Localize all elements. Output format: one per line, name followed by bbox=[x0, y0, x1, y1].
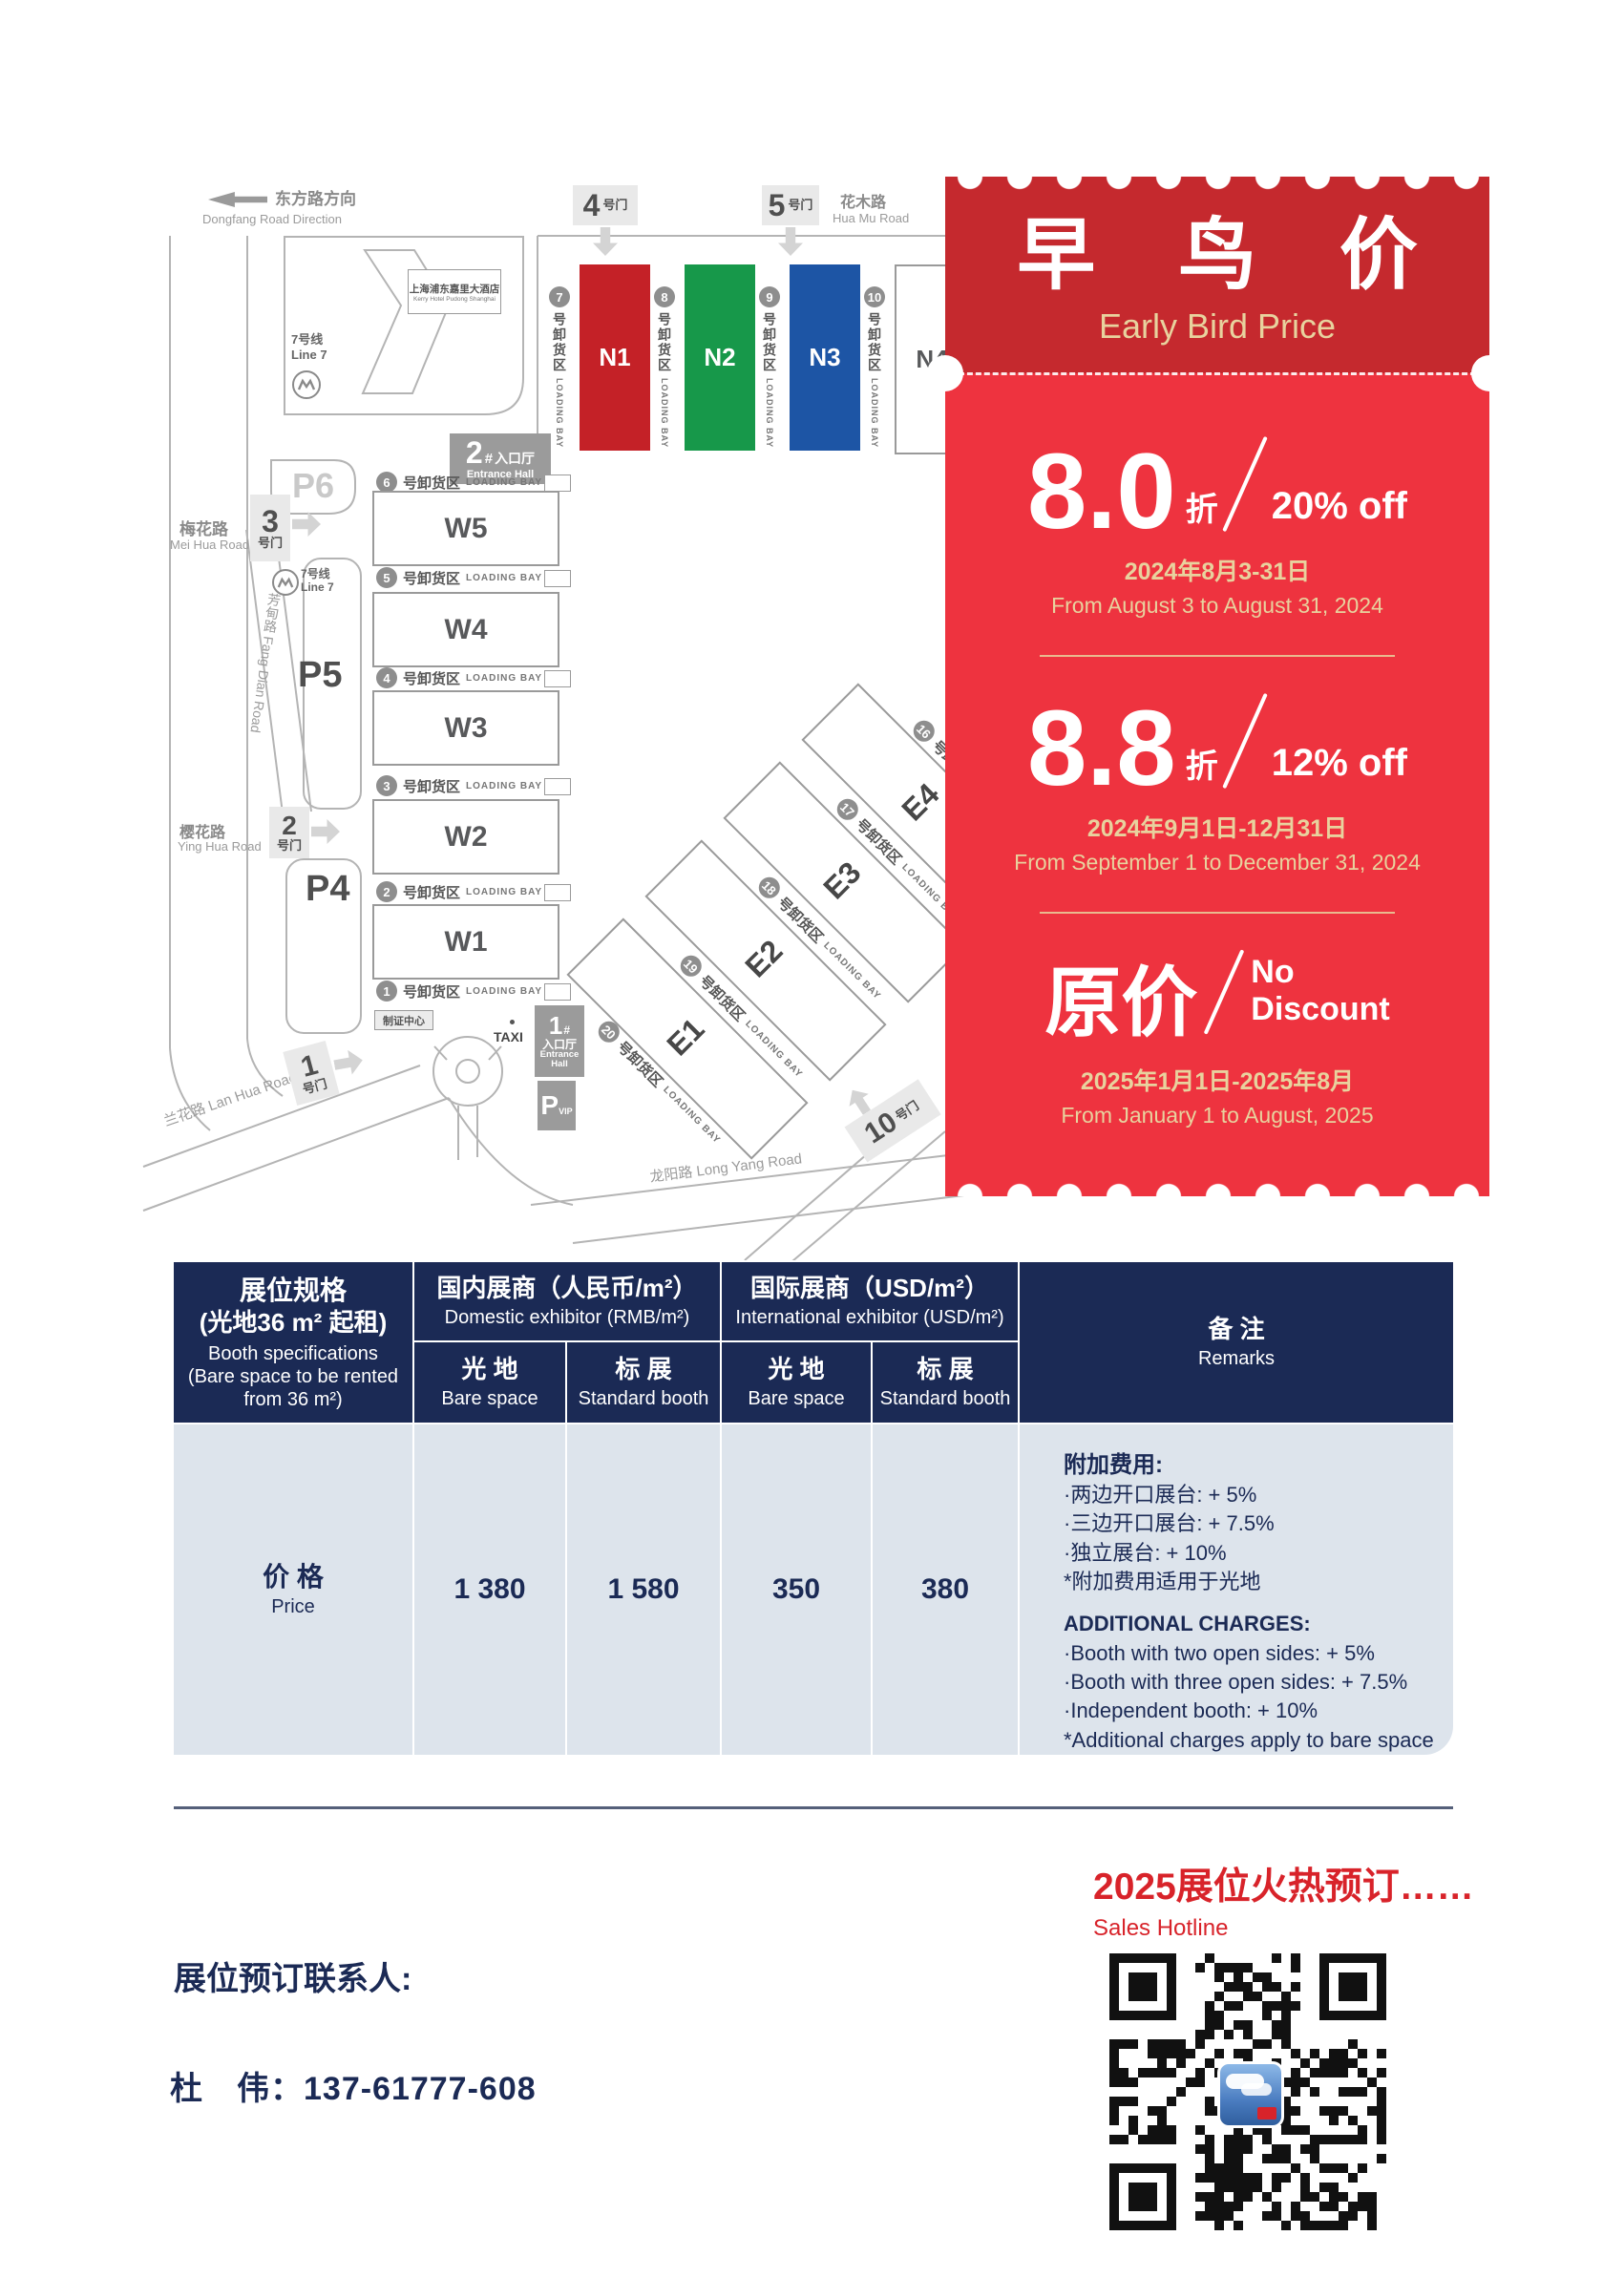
huamu-road-zh: 花木路 bbox=[840, 189, 886, 212]
qr-code bbox=[1109, 1953, 1386, 2230]
tier-3-date-en: From January 1 to August, 2025 bbox=[945, 1103, 1489, 1128]
contact-phone: 杜 伟：137-61777-608 bbox=[170, 2062, 537, 2109]
yinghua-road-en: Ying Hua Road bbox=[178, 839, 262, 854]
hall-w3: W3 bbox=[372, 690, 559, 766]
metro-icon bbox=[272, 569, 299, 596]
tier-1-date-en: From August 3 to August 31, 2024 bbox=[945, 593, 1489, 619]
dock-notch bbox=[544, 475, 571, 492]
table-cell-domestic-std: 1 580 bbox=[567, 1424, 720, 1755]
tier-2-date-en: From September 1 to December 31, 2024 bbox=[945, 850, 1489, 875]
dock-notch bbox=[544, 884, 571, 901]
coupon-notch-right bbox=[1471, 355, 1508, 391]
coupon-title-en: Early Bird Price bbox=[945, 306, 1489, 347]
table-subheader-intl-std: 标 展 Standard booth bbox=[873, 1342, 1018, 1423]
gold-divider bbox=[1040, 912, 1395, 914]
dock-notch bbox=[544, 570, 571, 587]
taxi-dot bbox=[510, 1020, 515, 1024]
table-cell-price-label: 价 格 Price bbox=[174, 1424, 412, 1755]
table-cell-domestic-bare: 1 380 bbox=[414, 1424, 565, 1755]
meihua-road-en: Mei Hua Road bbox=[170, 538, 249, 552]
sales-hotline-title: 2025展位火热预订…… bbox=[1093, 1857, 1474, 1910]
slash-divider bbox=[1222, 436, 1268, 532]
scallop-edge-bottom bbox=[945, 1179, 1489, 1196]
gate-4: 4 号门 bbox=[573, 185, 638, 225]
contact-label: 展位预订联系人: bbox=[174, 1952, 411, 1999]
qr-center-logo bbox=[1217, 2061, 1284, 2128]
table-header-international: 国际展商（USD/m²） International exhibitor (US… bbox=[722, 1262, 1018, 1340]
table-subheader-domestic-std: 标 展 Standard booth bbox=[567, 1342, 720, 1423]
hall-w5: W5 bbox=[372, 491, 559, 566]
loading-bay-9: 9 号卸货区 LOADING BAY bbox=[756, 286, 783, 448]
loading-bay-8: 8 号卸货区 LOADING BAY bbox=[651, 286, 678, 448]
coupon-notch-left bbox=[927, 355, 963, 391]
sales-hotline-subtitle: Sales Hotline bbox=[1093, 1915, 1228, 1942]
dongfang-road-label-zh: 东方路方向 bbox=[275, 185, 356, 209]
loading-bay-3: 3 号卸货区 LOADING BAY bbox=[376, 775, 542, 796]
slash-divider bbox=[1222, 693, 1268, 789]
huamu-road-en: Hua Mu Road bbox=[833, 211, 909, 225]
meihua-road-zh: 梅花路 bbox=[179, 516, 228, 539]
metro-icon bbox=[292, 370, 321, 399]
loading-bay-5: 5 号卸货区 LOADING BAY bbox=[376, 567, 542, 588]
table-subheader-domestic-bare: 光 地 Bare space bbox=[414, 1342, 565, 1423]
flag-icon bbox=[1257, 2107, 1276, 2120]
gate-3: 3 号门 bbox=[250, 495, 290, 561]
tier-2-date-zh: 2024年9月1日-12月31日 bbox=[945, 810, 1489, 844]
parking-p6: P6 bbox=[292, 466, 334, 506]
tier-2: 8.8 折 12% off bbox=[945, 689, 1489, 792]
line7-label-gate3: 7号线 Line 7 bbox=[301, 567, 334, 595]
loading-bay-7: 7 号卸货区 LOADING BAY bbox=[546, 286, 573, 448]
badge-center: 制证中心 bbox=[374, 1010, 433, 1030]
coupon-title-zh: 早 鸟 价 bbox=[945, 215, 1489, 297]
coupon-body: 8.0 折 20% off 2024年8月3-31日 From August 3… bbox=[945, 373, 1489, 1196]
tier-1: 8.0 折 20% off bbox=[945, 432, 1489, 536]
dock-notch bbox=[544, 670, 571, 687]
gate-2: 2 号门 bbox=[269, 807, 309, 858]
table-header-domestic: 国内展商（人民币/m²） Domestic exhibitor (RMB/m²) bbox=[414, 1262, 720, 1340]
loading-bay-2: 2 号卸货区 LOADING BAY bbox=[376, 881, 542, 902]
hall-n1: N1 bbox=[580, 264, 650, 451]
table-cell-remarks: 附加费用: ·两边开口展台: + 5% ·三边开口展台: + 7.5% ·独立展… bbox=[1020, 1424, 1453, 1755]
loading-bay-4: 4 号卸货区 LOADING BAY bbox=[376, 667, 542, 688]
tier-1-date-zh: 2024年8月3-31日 bbox=[945, 553, 1489, 587]
dock-notch bbox=[544, 778, 571, 795]
table-subheader-intl-bare: 光 地 Bare space bbox=[722, 1342, 871, 1423]
early-bird-coupon: 早 鸟 价 Early Bird Price 8.0 折 20% off 202… bbox=[945, 177, 1489, 1196]
tier-3: 原价 No Discount bbox=[945, 946, 1489, 1038]
loading-bay-1: 1 号卸货区 LOADING BAY bbox=[376, 981, 542, 1002]
table-cell-intl-std: 380 bbox=[873, 1424, 1018, 1755]
hall-w2: W2 bbox=[372, 799, 559, 875]
dock-notch bbox=[544, 983, 571, 1001]
parking-vip: P VIP bbox=[538, 1081, 576, 1130]
coupon-header: 早 鸟 价 Early Bird Price bbox=[945, 177, 1489, 373]
entrance-hall-1: 1 # 入口厅 Entrance Hall bbox=[535, 1005, 584, 1077]
scallop-edge-top bbox=[945, 177, 1489, 194]
flyer-page: 东方路方向 Dongfang Road Direction 4 号门 5 号门 … bbox=[0, 0, 1624, 2278]
table-header-spec: 展位规格 (光地36 m² 起租) Booth specifications (… bbox=[174, 1262, 412, 1423]
hall-n2: N2 bbox=[685, 264, 755, 451]
dongfang-road-label-en: Dongfang Road Direction bbox=[202, 212, 342, 226]
slash-divider bbox=[1204, 949, 1245, 1034]
gold-divider bbox=[1040, 655, 1395, 657]
tier-3-date-zh: 2025年1月1日-2025年8月 bbox=[945, 1063, 1489, 1097]
coupon-perforation bbox=[959, 372, 1476, 375]
hall-n3: N3 bbox=[790, 264, 860, 451]
hall-w4: W4 bbox=[372, 592, 559, 667]
taxi-label: TAXI bbox=[494, 1029, 523, 1044]
table-cell-intl-bare: 350 bbox=[722, 1424, 871, 1755]
line7-label-hotel: 7号线 Line 7 bbox=[291, 332, 327, 364]
loading-bay-10: 10 号卸货区 LOADING BAY bbox=[861, 286, 888, 448]
parking-p5: P5 bbox=[298, 655, 342, 696]
parking-p4: P4 bbox=[306, 869, 349, 910]
gate-5: 5 号门 bbox=[762, 185, 819, 225]
table-header-remarks: 备 注 Remarks bbox=[1020, 1262, 1453, 1423]
hall-w1: W1 bbox=[372, 904, 559, 980]
loading-bay-6: 6 号卸货区 LOADING BAY bbox=[376, 472, 542, 493]
footer-divider bbox=[174, 1806, 1453, 1809]
cloud-icon bbox=[1241, 2083, 1272, 2096]
kerry-hotel-label: 上海浦东嘉里大酒店 Kerry Hotel Pudong Shanghai bbox=[408, 269, 501, 314]
